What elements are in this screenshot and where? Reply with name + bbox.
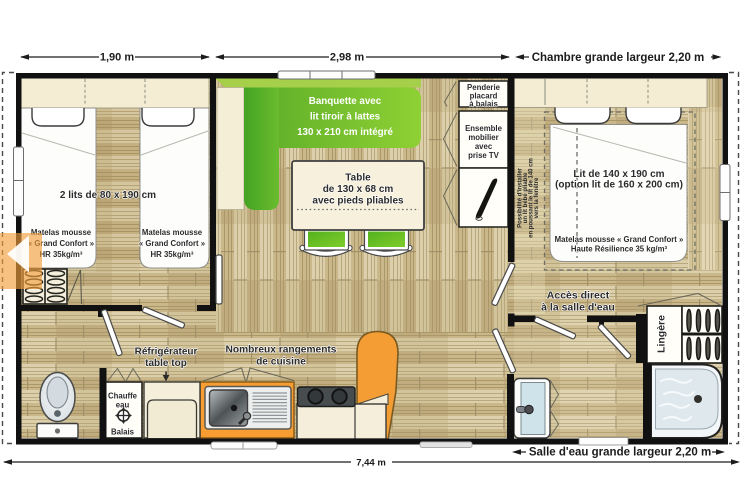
svg-text:eau: eau bbox=[116, 401, 130, 410]
svg-text:à balais: à balais bbox=[469, 100, 498, 109]
svg-text:de 130 x 68 cm: de 130 x 68 cm bbox=[323, 184, 394, 195]
svg-text:2 lits de 80 x 190 cm: 2 lits de 80 x 190 cm bbox=[60, 190, 156, 201]
svg-text:Accès direct: Accès direct bbox=[547, 290, 610, 302]
svg-text:7,44 m: 7,44 m bbox=[356, 458, 386, 469]
svg-text:Salle d'eau grande largeur 2,2: Salle d'eau grande largeur 2,20 m bbox=[529, 447, 711, 459]
svg-text:Chauffe: Chauffe bbox=[108, 392, 138, 401]
svg-text:« Grand Confort »: « Grand Confort » bbox=[139, 239, 205, 248]
svg-text:mobilier: mobilier bbox=[468, 133, 498, 142]
svg-text:(option lit de 160 x 200 cm): (option lit de 160 x 200 cm) bbox=[555, 180, 683, 191]
svg-text:130 x 210 cm intégré: 130 x 210 cm intégré bbox=[297, 127, 393, 138]
svg-text:Lingère: Lingère bbox=[656, 315, 668, 353]
svg-text:avec: avec bbox=[475, 142, 493, 151]
svg-text:vers la fenêtre: vers la fenêtre bbox=[534, 177, 540, 218]
svg-text:Haute Résilience 35 kg/m³: Haute Résilience 35 kg/m³ bbox=[571, 245, 668, 254]
svg-text:Matelas mousse: Matelas mousse bbox=[142, 228, 203, 237]
svg-text:Ensemble: Ensemble bbox=[465, 124, 502, 133]
svg-text:Chambre grande largeur 2,20 m: Chambre grande largeur 2,20 m bbox=[532, 52, 705, 64]
svg-text:prise TV: prise TV bbox=[468, 151, 500, 160]
svg-text:Lit de 140 x 190 cm: Lit de 140 x 190 cm bbox=[573, 169, 664, 180]
svg-text:Table: Table bbox=[345, 173, 371, 184]
svg-text:Balais: Balais bbox=[111, 428, 135, 437]
svg-text:à la salle d'eau: à la salle d'eau bbox=[541, 302, 615, 314]
svg-text:1,90 m: 1,90 m bbox=[100, 52, 134, 64]
svg-text:table top: table top bbox=[145, 358, 187, 369]
svg-text:de cuisine: de cuisine bbox=[256, 357, 306, 368]
svg-text:HR 35kg/m³: HR 35kg/m³ bbox=[40, 250, 83, 259]
svg-text:Nombreux rangements: Nombreux rangements bbox=[226, 345, 337, 356]
svg-text:avec pieds pliables: avec pieds pliables bbox=[312, 196, 404, 207]
svg-text:Réfrigérateur: Réfrigérateur bbox=[135, 347, 198, 358]
svg-text:HR 35kg/m³: HR 35kg/m³ bbox=[151, 250, 194, 259]
svg-text:2,98 m: 2,98 m bbox=[330, 52, 364, 64]
svg-text:lit tiroir à lattes: lit tiroir à lattes bbox=[310, 112, 381, 123]
svg-text:Matelas mousse « Grand Confort: Matelas mousse « Grand Confort » bbox=[555, 235, 684, 244]
svg-text:Banquette avec: Banquette avec bbox=[309, 96, 382, 107]
